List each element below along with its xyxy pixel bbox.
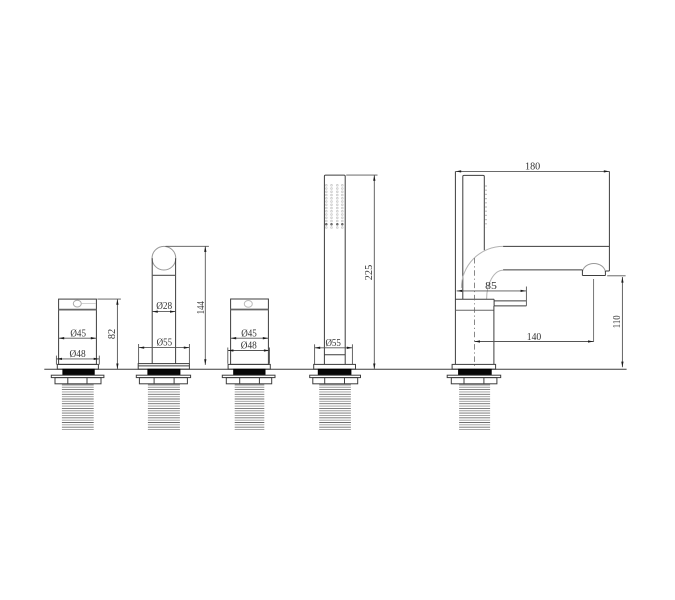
svg-text:Ø45: Ø45 bbox=[70, 329, 86, 340]
svg-text:Ø48: Ø48 bbox=[241, 341, 257, 352]
svg-text:225: 225 bbox=[364, 265, 375, 280]
svg-text:82: 82 bbox=[107, 329, 118, 339]
svg-text:Ø48: Ø48 bbox=[70, 349, 86, 360]
svg-text:Ø55: Ø55 bbox=[157, 338, 173, 349]
svg-text:180: 180 bbox=[525, 161, 540, 172]
svg-text:Ø28: Ø28 bbox=[156, 301, 172, 312]
svg-text:144: 144 bbox=[196, 301, 207, 314]
svg-text:Ø45: Ø45 bbox=[241, 328, 257, 339]
svg-text:85: 85 bbox=[485, 281, 497, 292]
svg-text:140: 140 bbox=[527, 332, 542, 343]
svg-text:110: 110 bbox=[612, 315, 623, 328]
svg-text:Ø55: Ø55 bbox=[325, 338, 341, 349]
